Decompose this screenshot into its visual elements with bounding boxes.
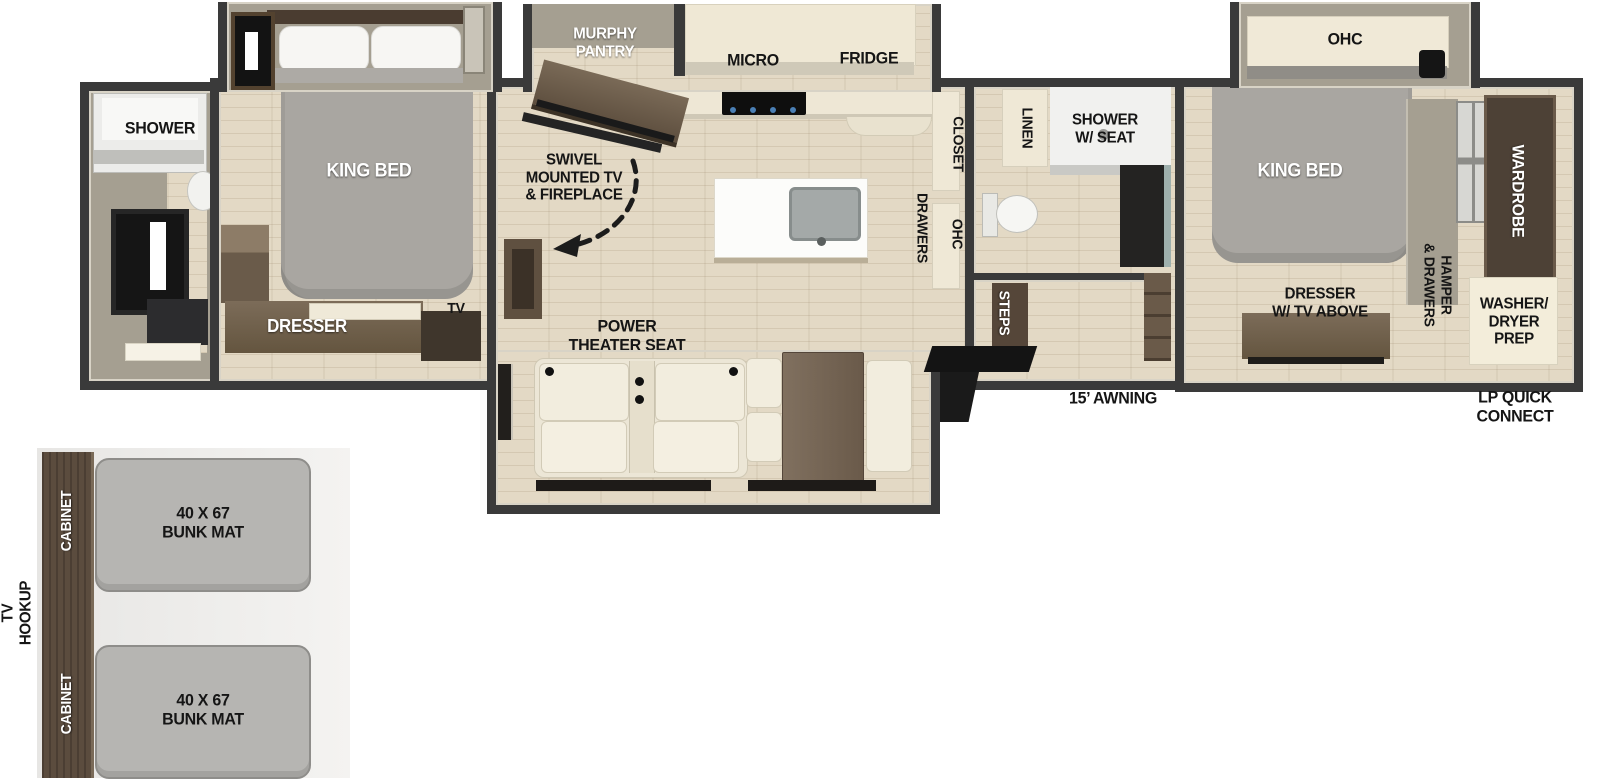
- sink: [789, 187, 861, 241]
- seat-cushion: [541, 421, 627, 473]
- window-pane: [245, 32, 258, 70]
- theater-slideout: [487, 350, 940, 514]
- dresser-tv: [1248, 357, 1384, 364]
- front-bedroom-slideout: OHC: [1230, 2, 1480, 88]
- awning-label: 15’ AWNING: [1069, 390, 1157, 409]
- bath-wall: [974, 273, 1171, 282]
- fireplace-niche: [504, 239, 542, 319]
- bedside-tv: [1419, 50, 1445, 78]
- front-headboard: [1247, 66, 1447, 79]
- bunk-mat-upper: 40 X 67 BUNK MAT: [95, 458, 311, 592]
- tv-console: [421, 311, 481, 361]
- dresser-label: DRESSER: [267, 317, 347, 337]
- tv-hookup-label: TV HOOKUP: [0, 581, 35, 645]
- fridge-label: FRIDGE: [840, 50, 899, 69]
- bunk-mat-lower: 40 X 67 BUNK MAT: [95, 645, 311, 779]
- fireplace-opening: [512, 249, 534, 309]
- kitchen-island: [714, 178, 868, 258]
- bed-top: [267, 68, 463, 83]
- king-bed-label: KING BED: [326, 162, 411, 183]
- dinette-table: [782, 352, 864, 482]
- micro-label: MICRO: [727, 52, 779, 71]
- bunk-inset: CABINET CABINET 40 X 67 BUNK MAT 40 X 67…: [37, 448, 350, 778]
- bunk-mat-upper-label: 40 X 67 BUNK MAT: [162, 504, 244, 541]
- nightstand: [221, 225, 269, 303]
- dinette-bench: [746, 358, 782, 408]
- slide-window: [498, 364, 513, 440]
- shower-glass: [1164, 165, 1171, 267]
- tv-label: TV: [447, 301, 464, 318]
- drawers-label: DRAWERS: [913, 193, 930, 263]
- bedroom-window: [463, 6, 485, 74]
- pillow: [371, 26, 461, 72]
- swivel-arrow-icon: [545, 155, 680, 265]
- mid-toilet-bowl: [996, 195, 1038, 233]
- bunk-cabinet-strip: CABINET CABINET: [42, 452, 94, 778]
- cooktop-knob: [750, 107, 756, 113]
- slide-window: [536, 480, 711, 491]
- front-ohc-label: OHC: [1328, 31, 1363, 50]
- rear-vanity: [147, 299, 208, 345]
- kitchen-ohc-label: OHC: [948, 219, 965, 249]
- wardrobe-label: WARDROBE: [1508, 145, 1527, 238]
- pillow: [279, 26, 369, 72]
- rear-bedroom: KING BED DRESSER TV: [210, 78, 508, 390]
- rear-bedroom-slideout: [218, 2, 502, 92]
- mid-bathroom-entry: LINEN SHOWER W/ SEAT STEPS: [965, 78, 1198, 390]
- recliner-button: [635, 395, 644, 404]
- cooktop-knob: [730, 107, 736, 113]
- front-bedroom: KING BED WARDROBE HAMPER & DRAWERS DRESS…: [1175, 78, 1583, 392]
- cabinet-lower-label: CABINET: [59, 674, 76, 735]
- cabinet-upper-label: CABINET: [59, 491, 76, 552]
- rear-bath-counter: [125, 343, 201, 361]
- cooktop-knob: [770, 107, 776, 113]
- cooktop: [722, 89, 806, 115]
- hamper-drawers-label: HAMPER & DRAWERS: [1421, 243, 1454, 327]
- shower-w-seat-label: SHOWER W/ SEAT: [1072, 111, 1138, 146]
- king-bed-label: KING BED: [1257, 162, 1342, 183]
- theater-seats: [534, 358, 748, 478]
- rv-floorplan: SHOWER KING BED DRESSER TV: [0, 0, 1600, 779]
- bunk-mat-lower-label: 40 X 67 BUNK MAT: [162, 691, 244, 728]
- lp-quick-connect-label: LP QUICK CONNECT: [1476, 388, 1553, 425]
- recliner-button: [545, 367, 554, 376]
- entry-door-mat: [924, 346, 1037, 372]
- mid-shower-floor: [1120, 165, 1171, 267]
- window-pane: [150, 222, 166, 290]
- steps-label: STEPS: [995, 291, 1012, 336]
- recliner-button: [635, 377, 644, 386]
- closet-label: CLOSET: [949, 116, 966, 172]
- linen-label: LINEN: [1018, 108, 1035, 149]
- dinette-bench: [866, 360, 912, 472]
- pantry-divider-wall: [674, 4, 685, 76]
- dinette-bench: [746, 412, 782, 462]
- recliner-button: [729, 367, 738, 376]
- rear-shower-label: SHOWER: [125, 120, 195, 139]
- fridge-front: [846, 117, 932, 136]
- murphy-pantry-label: MURPHY PANTRY: [573, 25, 636, 60]
- faucet: [817, 237, 826, 246]
- seat-cushion: [653, 421, 739, 473]
- bedroom-window: [231, 12, 275, 90]
- stairs-to-bedroom: [1144, 273, 1171, 361]
- slide-window: [748, 480, 876, 491]
- king-bed: [281, 87, 473, 299]
- washer-dryer-label: WASHER/ DRYER PREP: [1480, 296, 1548, 349]
- cooktop-knob: [790, 107, 796, 113]
- rear-shower-ledge: [94, 150, 204, 164]
- dresser-tv-label: DRESSER W/ TV ABOVE: [1272, 285, 1368, 320]
- headboard: [267, 10, 463, 24]
